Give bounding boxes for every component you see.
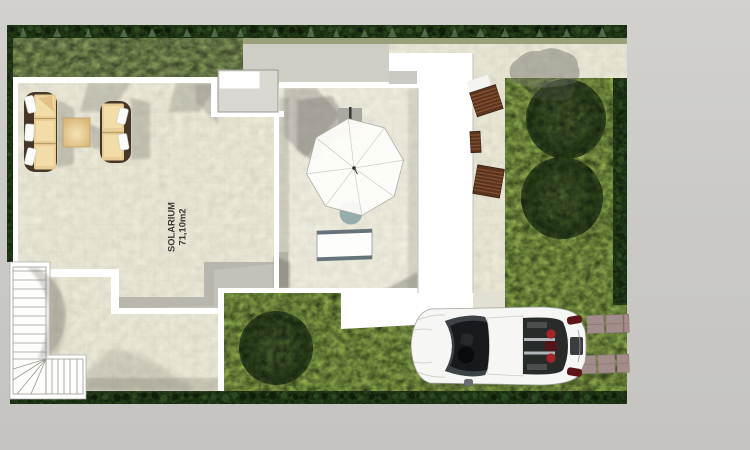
svg-text:71,10m2: 71,10m2	[177, 208, 188, 245]
svg-text:SOLARIUM: SOLARIUM	[166, 202, 177, 252]
